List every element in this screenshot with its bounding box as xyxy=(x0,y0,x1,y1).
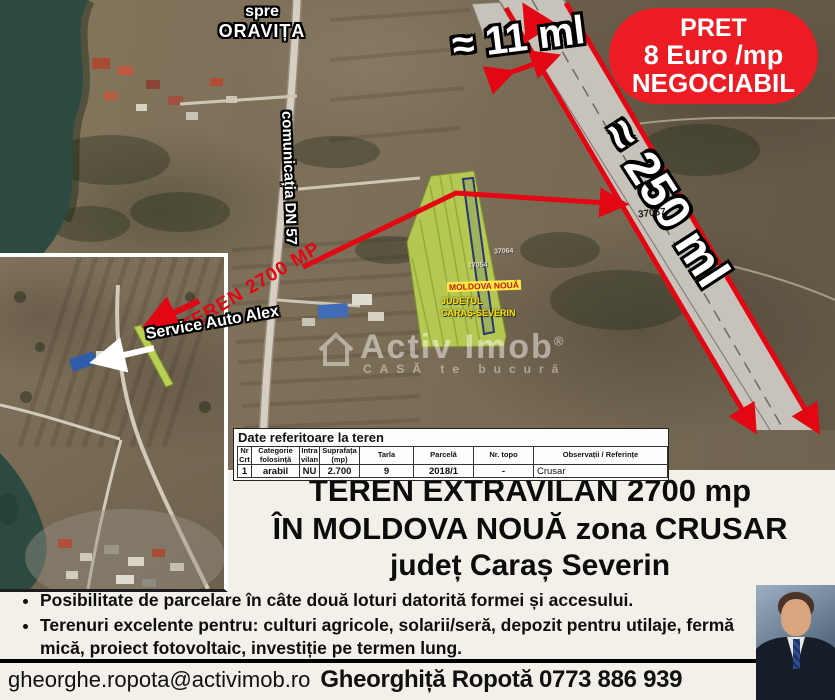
col-nrtopo: Nr. topo xyxy=(474,447,534,465)
parcel-green xyxy=(407,171,506,347)
listing-flyer: spre ORAVIȚA comunicația DN 57 ≈ 11 ml ≈… xyxy=(0,0,835,700)
cell-intravilan: NU xyxy=(300,465,320,478)
col-categorie: Categorie folosință xyxy=(252,447,300,465)
agent-name-phone: Gheorghiță Ropotă 0773 886 939 xyxy=(320,666,682,694)
inset-graphics xyxy=(0,257,224,589)
feature-list: Posibilitate de parcelare în câte două l… xyxy=(14,589,754,662)
agent-email: gheorghe.ropota@activimob.ro xyxy=(8,667,310,693)
village-houses xyxy=(92,58,237,120)
table-row: 1 arabil NU 2.700 9 2018/1 - Crusar xyxy=(238,465,668,478)
cell-suprafata: 2.700 xyxy=(320,465,360,478)
table-title: Date referitoare la teren xyxy=(238,430,665,445)
col-suprafata: Suprafața (mp) xyxy=(320,447,360,465)
price-label: PRET xyxy=(680,15,747,41)
agent-tie xyxy=(793,639,800,669)
inset-map xyxy=(0,253,228,592)
cell-observatii: Crusar xyxy=(534,465,668,478)
cell-categorie: arabil xyxy=(252,465,300,478)
price-badge: PRET 8 Euro /mp NEGOCIABIL xyxy=(609,8,818,104)
contact-bar: gheorghe.ropota@activimob.ro Gheorghiță … xyxy=(8,666,755,694)
parcel-number-1: 37064 xyxy=(494,247,514,255)
col-parcela: Parcelă xyxy=(414,447,474,465)
parcel-county-line1: JUDEȚUL xyxy=(441,296,516,308)
feature-item: Terenuri excelente pentru: culturi agric… xyxy=(40,614,754,659)
cell-parcela: 2018/1 xyxy=(414,465,474,478)
price-value: 8 Euro /mp xyxy=(644,41,784,69)
direction-line2: ORAVIȚA xyxy=(202,21,322,43)
table-header-row: Nr Crt Categorie folosință Intra vilan S… xyxy=(238,447,668,465)
col-intravilan: Intra vilan xyxy=(300,447,320,465)
agent-photo xyxy=(756,585,835,700)
parcel-county-label: JUDEȚUL CARAȘ-SEVERIN xyxy=(441,296,516,319)
inset-service-building xyxy=(69,351,106,372)
price-negotiable: NEGOCIABIL xyxy=(632,70,795,97)
feature-item: Posibilitate de parcelare în câte două l… xyxy=(40,589,754,611)
direction-label: spre ORAVIȚA xyxy=(202,2,322,43)
cell-tarla: 9 xyxy=(360,465,414,478)
col-nr: Nr Crt xyxy=(238,447,252,465)
cell-nrtopo: - xyxy=(474,465,534,478)
land-data-table: Nr Crt Categorie folosință Intra vilan S… xyxy=(237,446,668,478)
cell-nr: 1 xyxy=(238,465,252,478)
listing-title: TEREN EXTRAVILAN 2700 mp ÎN MOLDOVA NOUĂ… xyxy=(228,472,832,584)
col-tarla: Tarla xyxy=(360,447,414,465)
direction-line1: spre xyxy=(202,2,322,21)
col-observatii: Observații / Referințe xyxy=(534,447,668,465)
title-line2: ÎN MOLDOVA NOUĂ zona CRUSAR xyxy=(228,510,832,548)
land-data-box: Date referitoare la teren Nr Crt Categor… xyxy=(233,428,669,481)
parcel-county-line2: CARAȘ-SEVERIN xyxy=(441,308,516,320)
title-line3: județ Caraș Severin xyxy=(228,548,832,585)
footer-divider xyxy=(0,659,757,663)
parcel-number-2: 17054 xyxy=(468,261,488,269)
agent-face xyxy=(781,599,811,636)
